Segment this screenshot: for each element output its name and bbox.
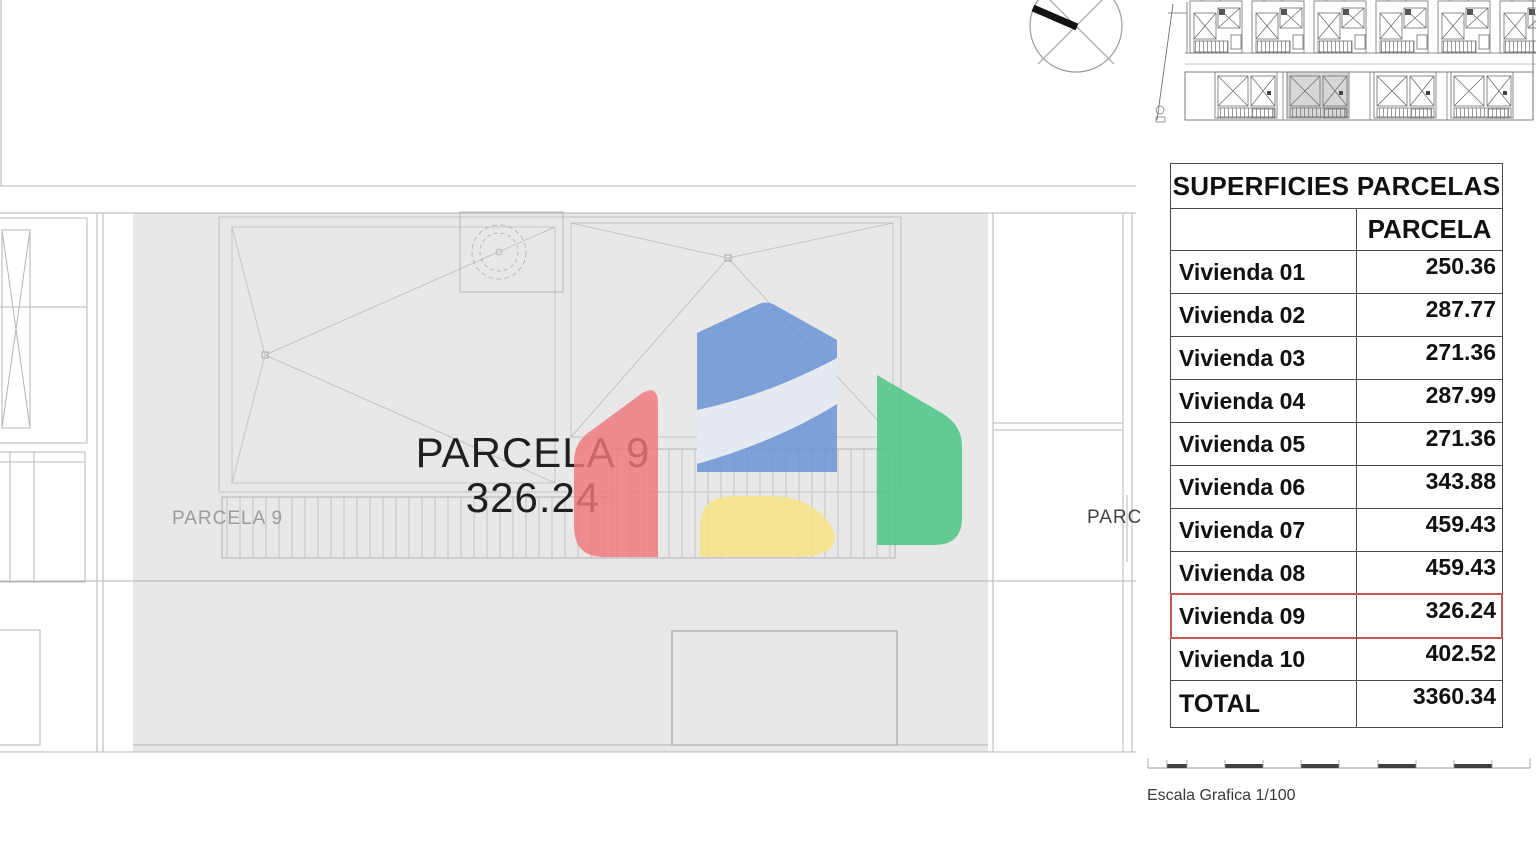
row-value: 326.24: [1357, 595, 1502, 637]
row-label: Vivienda 05: [1171, 423, 1357, 465]
header-parcela: PARCELA: [1357, 209, 1502, 250]
row-value: 343.88: [1357, 466, 1502, 508]
table-row: Vivienda 03 271.36: [1171, 337, 1502, 380]
row-value: 271.36: [1357, 423, 1502, 465]
row-label: Vivienda 03: [1171, 337, 1357, 379]
scale-caption: Escala Grafica 1/100: [1147, 787, 1296, 805]
table-row: Vivienda 05 271.36: [1171, 423, 1502, 466]
row-value: 3360.34: [1357, 681, 1502, 727]
row-value: 287.77: [1357, 294, 1502, 336]
neighbor-left-buildings: [0, 213, 103, 752]
neighbor-parcel-label: PARC: [1087, 507, 1142, 528]
table-title: SUPERFICIES PARCELAS: [1171, 164, 1502, 209]
row-label: Vivienda 10: [1171, 638, 1357, 680]
row-value: 287.99: [1357, 380, 1502, 422]
table-row: Vivienda 06 343.88: [1171, 466, 1502, 509]
row-value: 402.52: [1357, 638, 1502, 680]
table-row: Vivienda 02 287.77: [1171, 294, 1502, 337]
row-value: 250.36: [1357, 251, 1502, 293]
parcel-small-label: PARCELA 9: [172, 508, 283, 529]
table-header-row: PARCELA: [1171, 209, 1502, 251]
table-row: Vivienda 01 250.36: [1171, 251, 1502, 294]
row-label: Vivienda 01: [1171, 251, 1357, 293]
row-label: Vivienda 09: [1171, 595, 1357, 637]
row-value: 459.43: [1357, 552, 1502, 594]
row-label: Vivienda 06: [1171, 466, 1357, 508]
row-label: Vivienda 02: [1171, 294, 1357, 336]
header-empty-cell: [1171, 209, 1357, 250]
table-row: Vivienda 08 459.43: [1171, 552, 1502, 595]
north-arrow-icon: [1030, 0, 1122, 72]
table-row: Vivienda 10 402.52: [1171, 638, 1502, 681]
row-label: Vivienda 04: [1171, 380, 1357, 422]
row-label: Vivienda 07: [1171, 509, 1357, 551]
row-value: 459.43: [1357, 509, 1502, 551]
row-label: Vivienda 08: [1171, 552, 1357, 594]
row-value: 271.36: [1357, 337, 1502, 379]
row-label: TOTAL: [1171, 681, 1357, 727]
table-row: Vivienda 04 287.99: [1171, 380, 1502, 423]
table-row-highlighted: Vivienda 09 326.24: [1171, 595, 1502, 638]
neighbor-right-buildings: [993, 213, 1132, 752]
surfaces-table: SUPERFICIES PARCELAS PARCELA Vivienda 01…: [1170, 163, 1503, 728]
table-row: Vivienda 07 459.43: [1171, 509, 1502, 552]
table-row-total: TOTAL 3360.34: [1171, 681, 1502, 727]
